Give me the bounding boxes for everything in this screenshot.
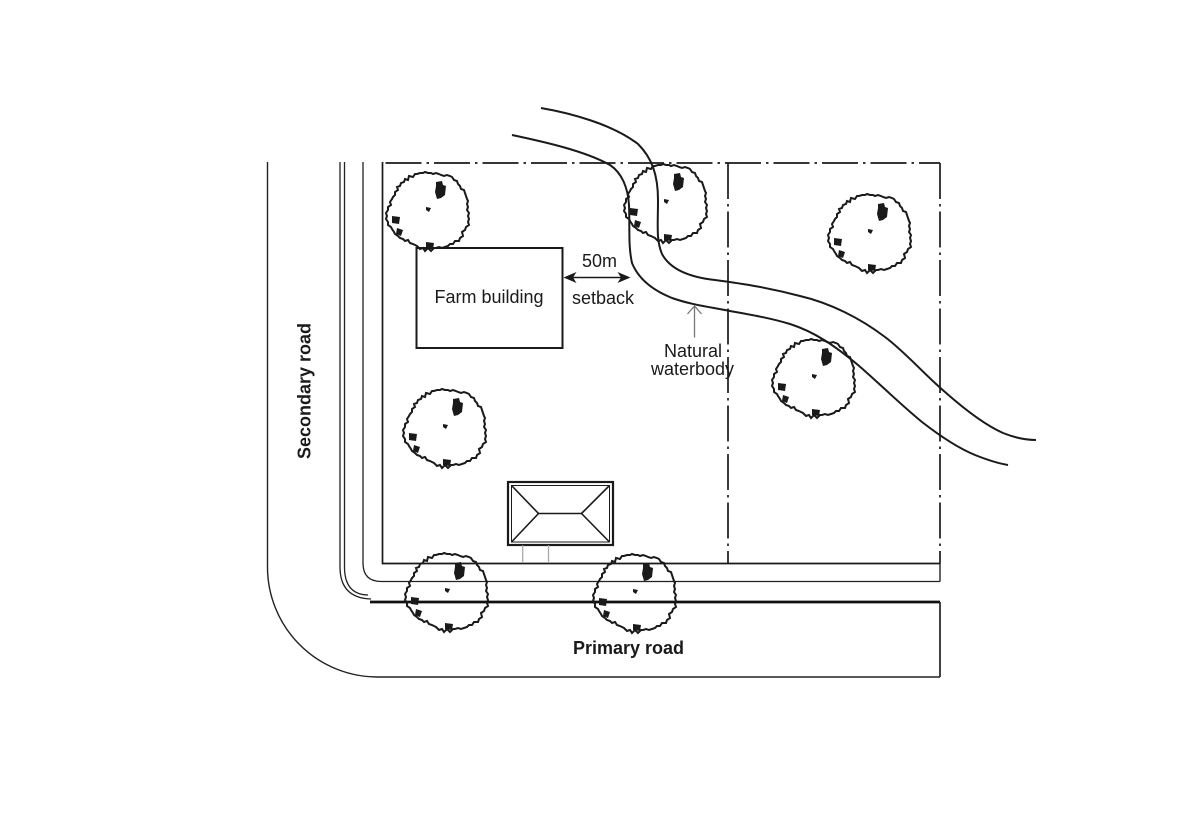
svg-text:Natural: Natural [664,341,722,361]
svg-text:50m: 50m [582,251,617,271]
svg-text:waterbody: waterbody [650,359,734,379]
svg-text:Secondary road: Secondary road [295,323,315,459]
svg-text:Primary road: Primary road [573,638,684,658]
svg-text:setback: setback [572,288,635,308]
svg-text:Farm building: Farm building [434,287,543,307]
